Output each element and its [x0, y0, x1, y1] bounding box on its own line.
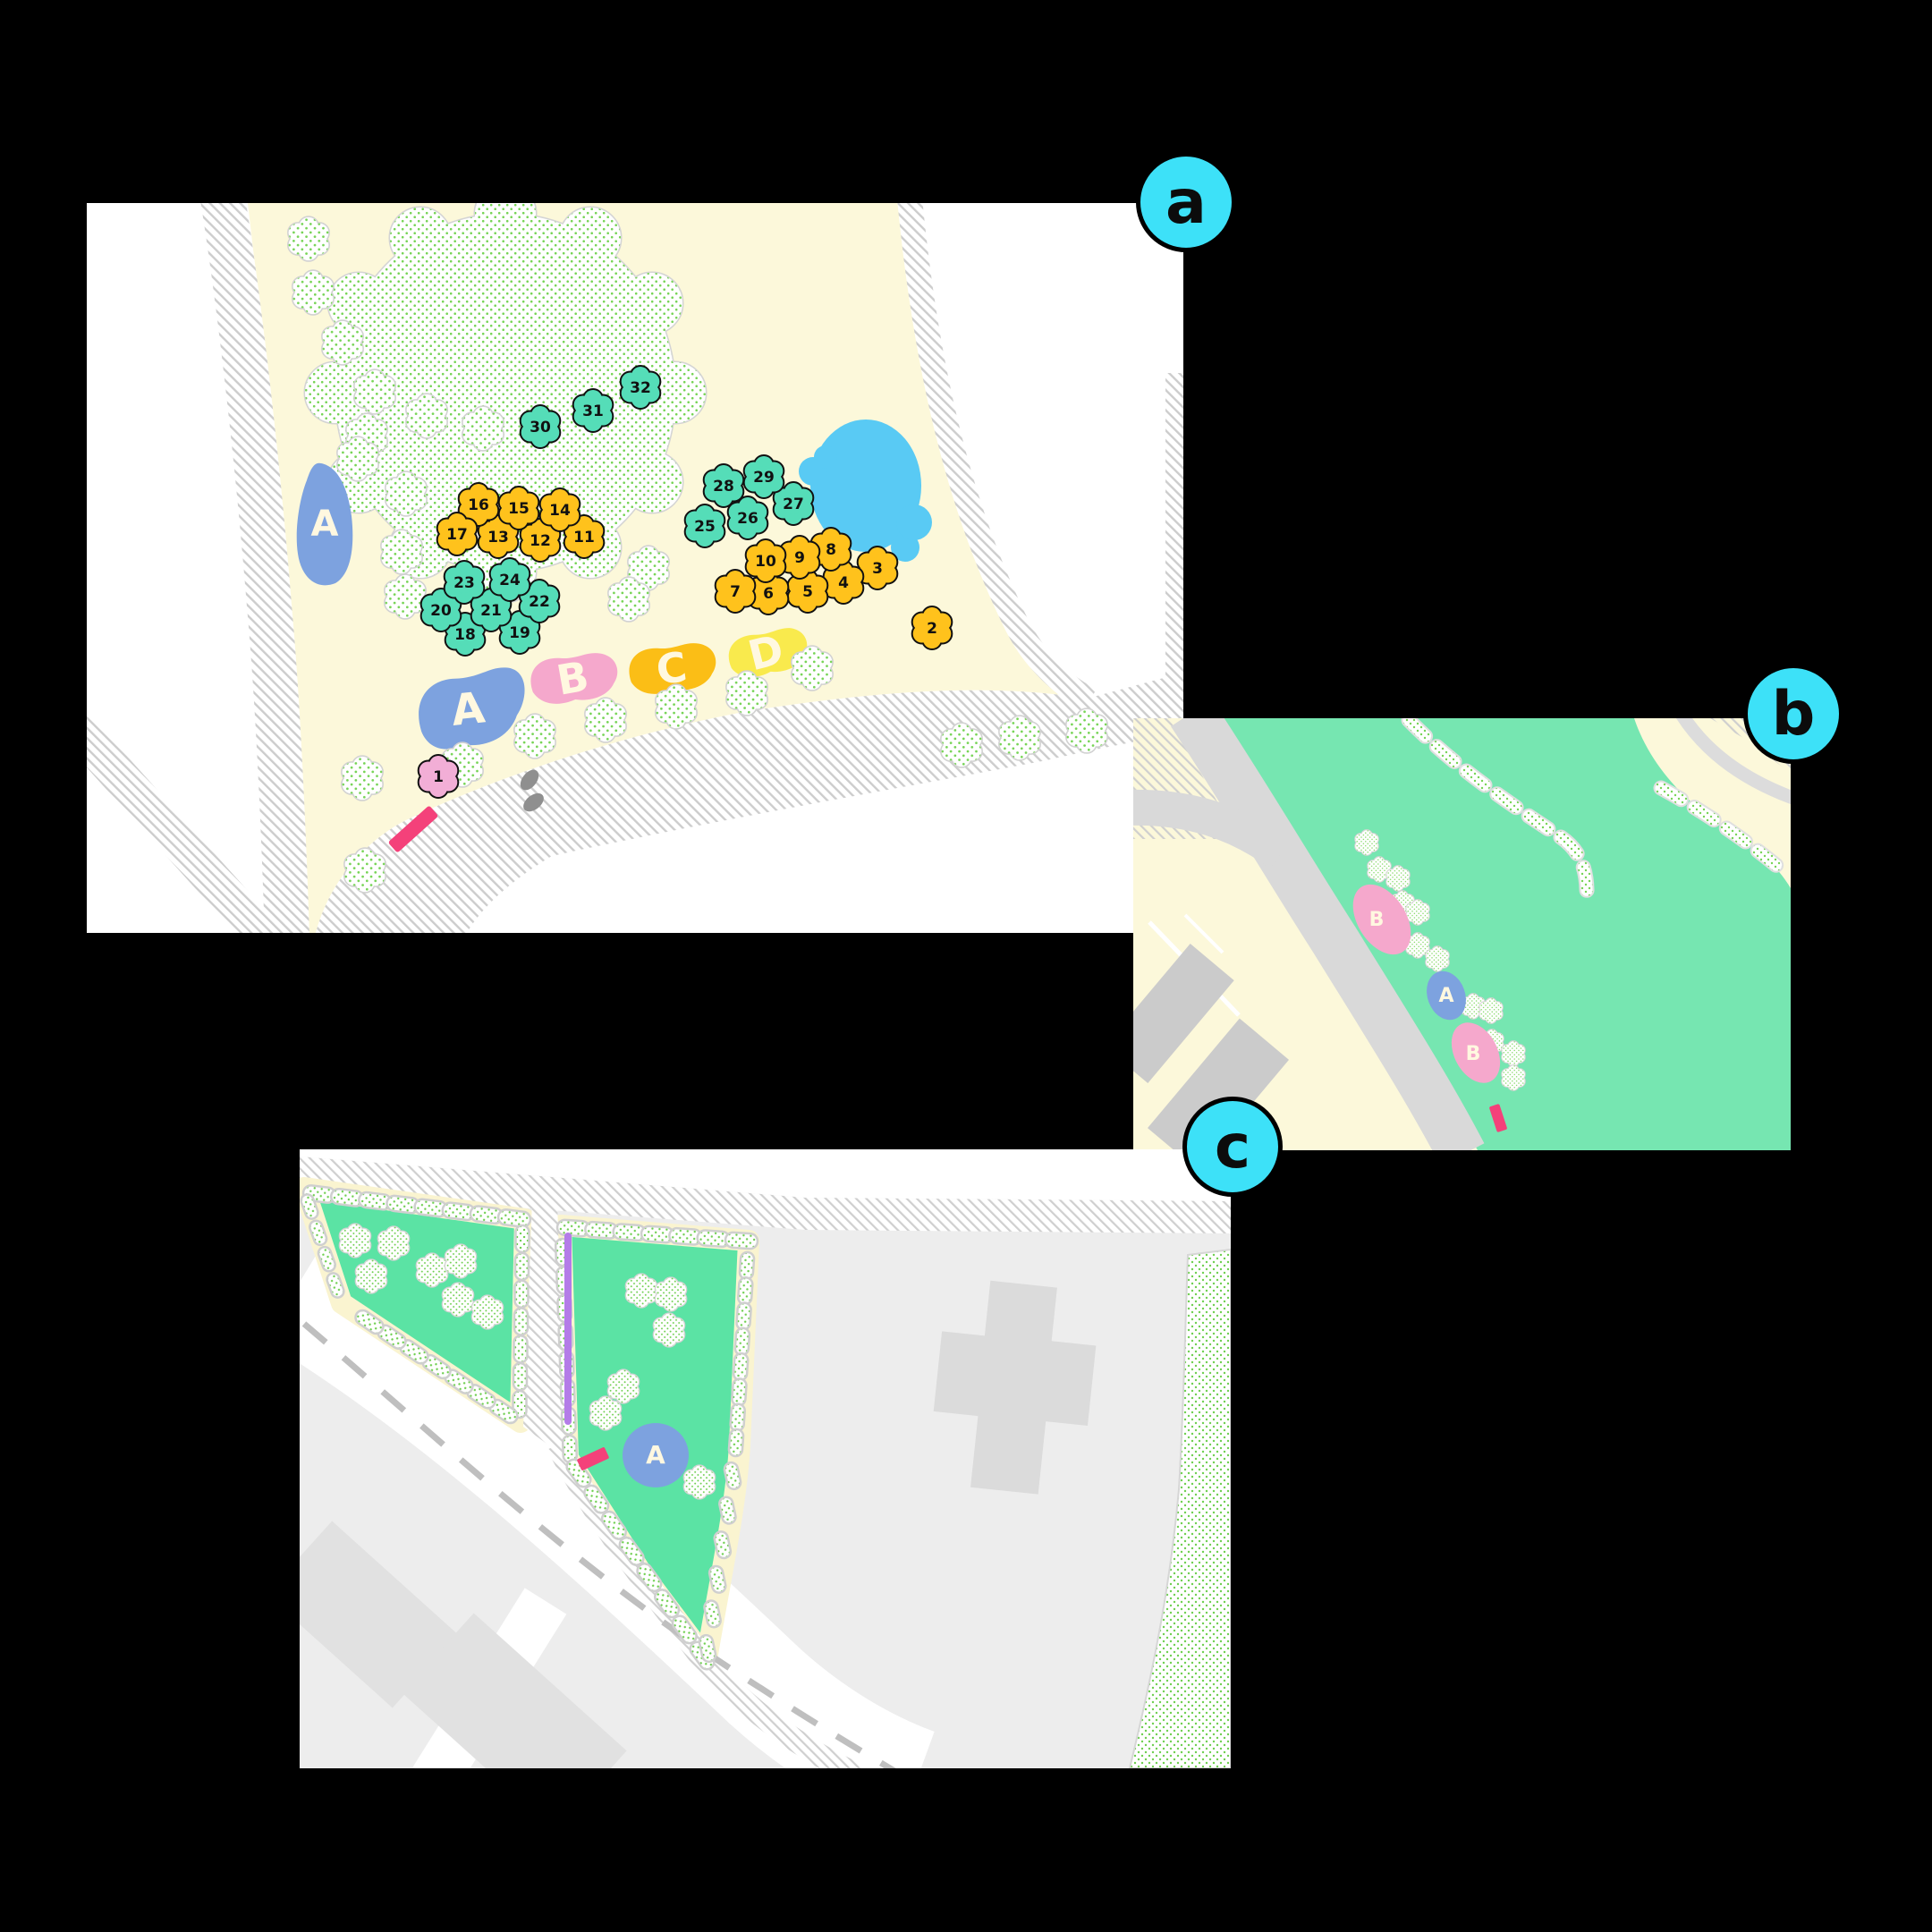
- area-label-B: B: [1369, 909, 1385, 931]
- marker-number: 7: [730, 583, 741, 601]
- hedge-icon: [516, 1225, 530, 1252]
- tree-icon: [293, 271, 334, 314]
- marker-number: 25: [694, 518, 716, 536]
- area-label-B: B: [1466, 1043, 1481, 1065]
- marker-number: 20: [430, 602, 452, 620]
- figure-badge-c: c: [1182, 1097, 1283, 1197]
- plant-marker-3[interactable]: 3: [859, 547, 897, 589]
- area-labels: A: [646, 1440, 665, 1470]
- marker-number: 26: [737, 510, 758, 528]
- tree-icon: [586, 699, 626, 741]
- hedge-icon: [514, 1309, 528, 1335]
- tree-icon: [472, 1296, 503, 1329]
- tree-icon: [386, 472, 427, 515]
- hedge-icon: [733, 1353, 749, 1381]
- plant-marker-10[interactable]: 10: [747, 540, 785, 581]
- tree-icon: [378, 1227, 409, 1260]
- marker-number: 24: [499, 572, 521, 589]
- map-panel-b: BAB: [1133, 718, 1791, 1150]
- hedge-icon: [513, 1363, 527, 1390]
- tree-icon: [654, 1314, 684, 1347]
- marker-number: 27: [783, 496, 804, 513]
- tree-icon: [590, 1397, 621, 1430]
- marker-number: 11: [573, 529, 595, 547]
- tree-icon: [407, 394, 447, 437]
- marker-number: 9: [794, 549, 805, 567]
- plant-marker-32[interactable]: 32: [622, 367, 660, 408]
- plant-marker-30[interactable]: 30: [521, 406, 560, 447]
- marker-number: 21: [480, 602, 502, 620]
- plant-marker-14[interactable]: 14: [541, 489, 580, 530]
- tree-icon: [1067, 709, 1107, 752]
- marker-number: 1: [433, 768, 444, 786]
- tree-icon: [942, 724, 982, 767]
- tree-icon: [463, 407, 504, 450]
- marker-number: 23: [453, 574, 475, 592]
- tree-icon: [386, 575, 426, 618]
- hedge-icon: [724, 1232, 758, 1249]
- marker-number: 12: [530, 532, 551, 550]
- zone-label-A: A: [449, 682, 487, 736]
- marker-number: 2: [927, 620, 937, 638]
- tree-icon: [1386, 866, 1410, 891]
- tree-icon: [443, 1284, 473, 1317]
- badge-b-label: b: [1772, 679, 1816, 750]
- marker-number: 28: [713, 478, 734, 496]
- marker-number: 10: [755, 553, 776, 571]
- marker-number: 5: [802, 583, 813, 601]
- plant-marker-17[interactable]: 17: [438, 513, 477, 555]
- tree-icon: [656, 1278, 686, 1311]
- plant-marker-25[interactable]: 25: [686, 505, 724, 547]
- tree-icon: [445, 1245, 476, 1278]
- hedge-icon: [515, 1281, 529, 1308]
- marker-number: 8: [826, 541, 836, 559]
- tree-icon: [792, 647, 833, 690]
- tree-icon: [1502, 1041, 1525, 1066]
- map-panel-a: 1234567891011121314151617181920212223242…: [87, 203, 1183, 933]
- marker-number: 31: [582, 402, 604, 420]
- plant-marker-7[interactable]: 7: [716, 571, 755, 612]
- marker-number: 4: [838, 574, 849, 592]
- marker-number: 17: [446, 526, 468, 544]
- tree-icon: [382, 530, 422, 573]
- marker-number: 14: [549, 502, 571, 520]
- tree-icon: [343, 757, 383, 800]
- plant-marker-26[interactable]: 26: [729, 497, 767, 538]
- plant-marker-9[interactable]: 9: [781, 537, 819, 578]
- tree-icon: [355, 370, 395, 413]
- hedge-icon: [728, 1429, 743, 1457]
- figure-badge-a: a: [1136, 152, 1236, 252]
- hedge-icon: [497, 1208, 531, 1227]
- tree-icon: [289, 217, 329, 260]
- marker-number: 29: [753, 469, 775, 487]
- hedge-icon: [738, 1277, 753, 1305]
- hedge-icon: [739, 1252, 754, 1280]
- marker-number: 3: [872, 560, 883, 578]
- hedge-icon: [515, 1253, 529, 1280]
- marker-number: 30: [530, 419, 551, 436]
- tree-icon: [1426, 946, 1449, 971]
- tree-icon: [417, 1254, 447, 1287]
- badge-a-label: a: [1165, 167, 1207, 238]
- tree-icon: [1479, 998, 1503, 1023]
- plant-marker-28[interactable]: 28: [705, 465, 743, 506]
- tree-icon: [345, 849, 386, 892]
- tree-icon: [684, 1466, 715, 1499]
- plant-marker-24[interactable]: 24: [491, 559, 530, 600]
- hedge-icon: [732, 1378, 747, 1406]
- hedge-icon: [514, 1335, 528, 1362]
- marker-number: 32: [630, 379, 651, 397]
- plant-marker-1[interactable]: 1: [419, 756, 458, 797]
- plant-marker-15[interactable]: 15: [500, 487, 538, 529]
- tree-icon: [515, 715, 555, 758]
- figure-canvas: 1234567891011121314151617181920212223242…: [0, 0, 1932, 1932]
- marker-number: 19: [509, 624, 530, 642]
- marker-number: 18: [454, 626, 476, 644]
- marker-number: 15: [508, 500, 530, 518]
- tree-icon: [340, 1224, 370, 1258]
- plant-marker-29[interactable]: 29: [745, 456, 784, 497]
- tree-icon: [323, 321, 363, 364]
- area-label-A: A: [646, 1440, 665, 1470]
- hedge-icon: [730, 1403, 745, 1431]
- zone-label-A: A: [311, 504, 339, 545]
- tree-icon: [1000, 716, 1040, 759]
- plant-marker-31[interactable]: 31: [574, 390, 613, 431]
- tree-icon: [1406, 900, 1429, 925]
- hedge-icon: [736, 1302, 751, 1330]
- tree-icon: [609, 578, 649, 621]
- marker-number: 22: [529, 593, 550, 611]
- purple-feature-line: [564, 1233, 572, 1425]
- marker-number: 6: [763, 585, 774, 603]
- figure-badge-b: b: [1743, 664, 1843, 764]
- area-label-A: A: [1438, 985, 1453, 1007]
- plant-marker-23[interactable]: 23: [445, 562, 484, 603]
- map-panel-c: A: [300, 1149, 1231, 1768]
- tree-icon: [1502, 1065, 1525, 1090]
- tree-icon: [626, 1275, 657, 1308]
- hedge-icon: [734, 1327, 750, 1355]
- tree-icon: [338, 437, 378, 480]
- plant-marker-2[interactable]: 2: [913, 607, 952, 648]
- badge-c-label: c: [1215, 1112, 1250, 1182]
- tree-icon: [356, 1260, 386, 1293]
- tree-icon: [1355, 830, 1378, 855]
- marker-number: 13: [487, 529, 509, 547]
- tree-icon: [608, 1370, 639, 1403]
- marker-number: 16: [468, 496, 489, 514]
